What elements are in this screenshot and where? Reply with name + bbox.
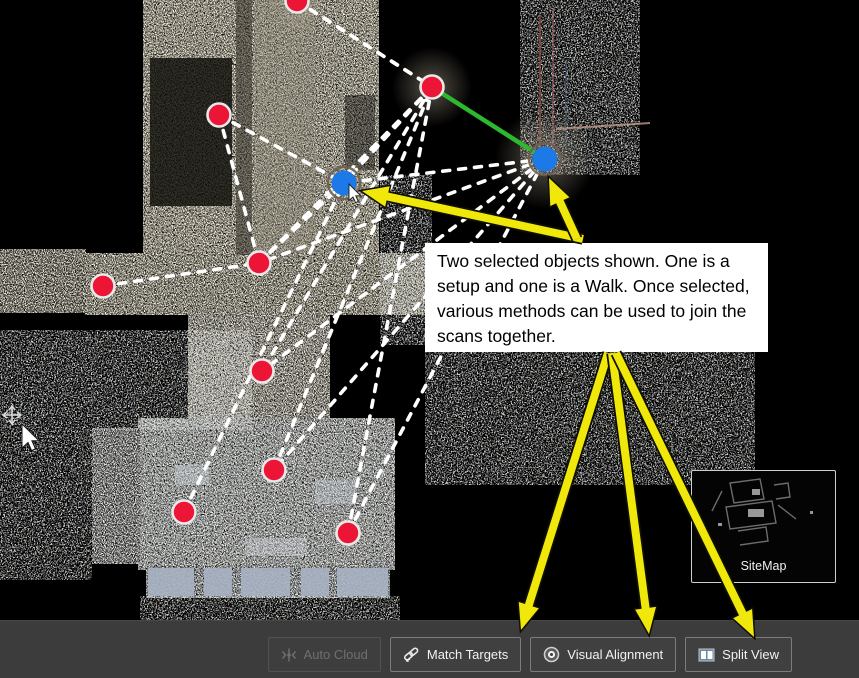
- auto-cloud-button[interactable]: Auto Cloud: [268, 637, 381, 672]
- setup-marker[interactable]: [421, 76, 444, 99]
- sitemap-panel[interactable]: SiteMap: [691, 470, 836, 583]
- sitemap-thumbnail: [692, 471, 835, 557]
- button-label: Split View: [722, 647, 779, 662]
- setup-marker[interactable]: [92, 275, 115, 298]
- application-window: Two selected objects shown. One is a set…: [0, 0, 859, 678]
- setup-marker[interactable]: [263, 459, 286, 482]
- selected-marker[interactable]: [332, 171, 357, 196]
- button-label: Match Targets: [427, 647, 508, 662]
- auto-cloud-icon: [281, 647, 297, 663]
- setup-marker[interactable]: [208, 104, 231, 127]
- sitemap-label: SiteMap: [692, 559, 835, 573]
- split-view-icon: [698, 647, 715, 663]
- toolbar-button-row: Auto Cloud Match Targets: [268, 637, 792, 672]
- setup-marker[interactable]: [251, 360, 274, 383]
- visual-alignment-button[interactable]: Visual Alignment: [530, 637, 676, 672]
- annotation-callout: Two selected objects shown. One is a set…: [425, 243, 768, 352]
- match-targets-button[interactable]: Match Targets: [390, 637, 521, 672]
- match-targets-icon: [403, 647, 420, 663]
- selected-marker[interactable]: [533, 147, 558, 172]
- annotation-text: Two selected objects shown. One is a set…: [437, 251, 750, 346]
- visual-alignment-icon: [543, 646, 560, 663]
- setup-marker[interactable]: [337, 522, 360, 545]
- setup-marker[interactable]: [286, 0, 309, 13]
- button-label: Auto Cloud: [304, 647, 368, 662]
- button-label: Visual Alignment: [567, 647, 663, 662]
- bottom-toolbar: Auto Cloud Match Targets: [0, 620, 859, 678]
- split-view-button[interactable]: Split View: [685, 637, 792, 672]
- setup-marker[interactable]: [173, 501, 196, 524]
- setup-marker[interactable]: [248, 252, 271, 275]
